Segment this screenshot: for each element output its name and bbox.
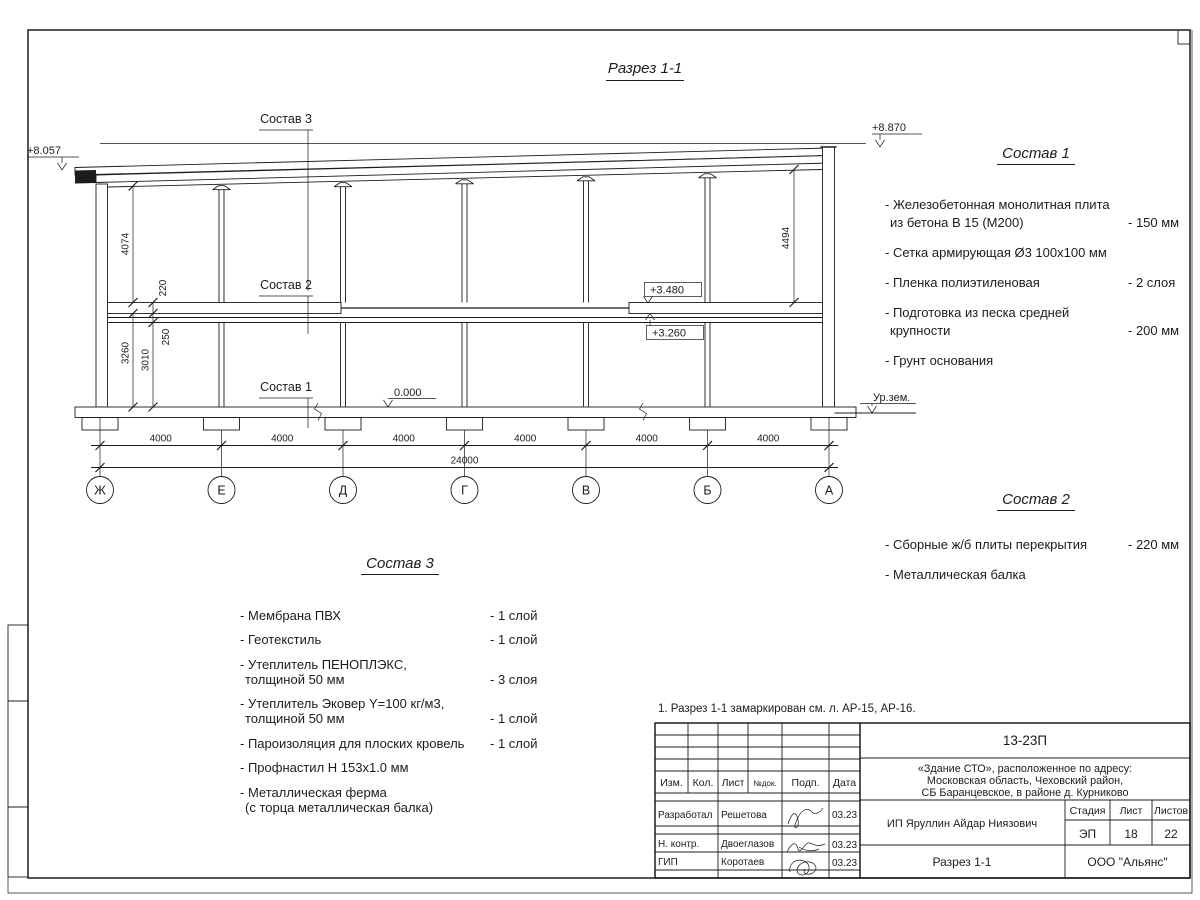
axis-label: Б [703, 484, 711, 498]
dim-3260: 3260 [121, 341, 132, 364]
sheet-svg: Разрез 1-1 [0, 0, 1200, 900]
sostav2-title: Состав 2 [885, 492, 1187, 511]
label-sostav3: Состав 3 [260, 112, 312, 126]
footing [447, 418, 483, 431]
axis-label: Г [461, 484, 468, 498]
signature [790, 860, 816, 875]
sheet-label: Лист [1120, 805, 1143, 817]
footing [568, 418, 604, 431]
col-izm: Изм. [660, 777, 683, 789]
dim-bay: 4000 [514, 434, 537, 445]
elev-zero: 0.000 [394, 387, 422, 399]
sostav2-block: Состав 2 - Сборные ж/б плиты перекрытия … [885, 492, 1187, 597]
left-dimensions: 4074 3260 220 250 3010 [121, 182, 173, 412]
elev-slab-top: +3.480 [650, 285, 684, 297]
object-line3: СБ Баранцевское, в районе д. Курниково [922, 787, 1129, 799]
doc-number: 13-23П [1003, 733, 1047, 748]
list-item: - Подготовка из песка среднейкрупности -… [885, 304, 1187, 340]
stage-label: Стадия [1070, 805, 1106, 817]
list-item: - Пароизоляция для плоских кровель - 1 с… [240, 736, 560, 751]
ground-slab [75, 403, 916, 430]
role-ncontr: Н. контр. [658, 839, 699, 850]
dim-4074: 4074 [121, 232, 132, 255]
list-item: - Сетка армирующая Ø3 100х100 мм [885, 244, 1187, 262]
dim-3010: 3010 [141, 348, 152, 371]
roof-left-cap [75, 170, 96, 184]
object-line2: Московская область, Чеховский район, [927, 775, 1123, 787]
drawing-title: Разрез 1-1 [608, 60, 682, 77]
footing [204, 418, 240, 431]
signature [787, 843, 825, 852]
client-name: ИП Яруллин Айдар Ниязович [887, 818, 1037, 830]
list-item: - Грунт основания [885, 352, 1187, 370]
elev-slab-bot: +3.260 [652, 328, 686, 340]
dim-4494: 4494 [781, 226, 792, 249]
drawing-sheet: Разрез 1-1 [0, 0, 1200, 900]
list-item: - Металлическая ферма(с торца металличес… [240, 785, 560, 815]
dim-bay: 4000 [393, 434, 416, 445]
sostav1-block: Состав 1 - Железобетонная монолитная пли… [885, 146, 1187, 382]
filing-box [8, 625, 28, 701]
axis-label: Д [339, 484, 348, 498]
sostav1-title: Состав 1 [885, 146, 1187, 165]
dim-bay: 4000 [271, 434, 294, 445]
col-podp: Подп. [792, 777, 820, 789]
sostav3-title: Состав 3 [240, 556, 560, 575]
name-ncontr: Двоеглазов [721, 839, 774, 850]
right-dimension: 4494 [781, 165, 799, 307]
label-sostav1: Состав 1 [260, 380, 312, 394]
axis-label: Е [217, 484, 225, 498]
walls [96, 147, 837, 407]
col-data: Дата [833, 777, 856, 789]
stage-value: ЭП [1079, 827, 1096, 841]
list-item: - Пленка полиэтиленовая - 2 слоя [885, 274, 1187, 292]
list-item: - Железобетонная монолитная плитаиз бето… [885, 196, 1187, 232]
list-item: - Металлическая балка [885, 567, 1187, 583]
list-item: - Профнастил Н 153х1.0 мм [240, 760, 560, 775]
label-sostav2: Состав 2 [260, 278, 312, 292]
axis-label: Ж [94, 484, 106, 498]
filing-box [8, 807, 28, 877]
corner-box [1178, 30, 1190, 44]
dim-total: 24000 [451, 456, 479, 467]
dim-250: 250 [161, 328, 172, 345]
note-text: 1. Разрез 1-1 замаркирован см. л. АР-15,… [658, 703, 916, 715]
sheet-value: 18 [1124, 827, 1138, 841]
sheets-value: 22 [1164, 827, 1178, 841]
signature [788, 808, 823, 828]
elev-left: +8.057 [27, 145, 61, 157]
date-developer: 03.23 [832, 810, 857, 821]
floor-slab [108, 303, 823, 323]
elev-right: +8.870 [872, 122, 906, 134]
list-item: - Мембрана ПВХ - 1 слой [240, 608, 560, 623]
list-item: - Геотекстиль - 1 слой [240, 632, 560, 647]
name-developer: Решетова [721, 810, 767, 821]
list-item: - Сборные ж/б плиты перекрытия - 220 мм [885, 537, 1187, 553]
axis-label: А [825, 484, 834, 498]
axis-label: В [582, 484, 590, 498]
name-gip: Коротаев [721, 857, 764, 868]
sheet-title: Разрез 1-1 [933, 855, 992, 869]
list-item: - Утеплитель ПЕНОПЛЭКС,толщиной 50 мм - … [240, 657, 560, 687]
col-ndok: №док. [753, 779, 776, 788]
role-developer: Разработал [658, 809, 713, 821]
filing-box [8, 701, 28, 807]
dim-220: 220 [158, 279, 169, 296]
dim-bay: 4000 [636, 434, 659, 445]
col-kol: Кол. [693, 777, 714, 789]
sheets-label: Листов [1154, 805, 1189, 817]
title-block: 1. Разрез 1-1 замаркирован см. л. АР-15,… [655, 703, 1190, 878]
list-item: - Утеплитель Эковер Y=100 кг/м3,толщиной… [240, 696, 560, 726]
ground-level-label: Ур.зем. [873, 392, 910, 404]
axis-bubbles: Ж Е Д Г В Б А [87, 477, 843, 504]
roof [75, 144, 866, 188]
footing [325, 418, 361, 431]
object-line1: «Здание СТО», расположенное по адресу: [918, 763, 1132, 775]
dim-bay: 4000 [150, 434, 173, 445]
dim-bay: 4000 [757, 434, 780, 445]
leader-labels: Состав 3 Состав 2 Состав 1 [259, 112, 313, 428]
col-list: Лист [722, 777, 745, 789]
footing [690, 418, 726, 431]
company-name: ООО "Альянс" [1087, 855, 1167, 869]
section-title: Разрез 1-1 [606, 60, 684, 81]
role-gip: ГИП [658, 857, 678, 868]
sostav3-block: Состав 3 - Мембрана ПВХ - 1 слой - Геоте… [240, 556, 560, 824]
date-gip: 03.23 [832, 858, 857, 869]
date-ncontr: 03.23 [832, 840, 857, 851]
